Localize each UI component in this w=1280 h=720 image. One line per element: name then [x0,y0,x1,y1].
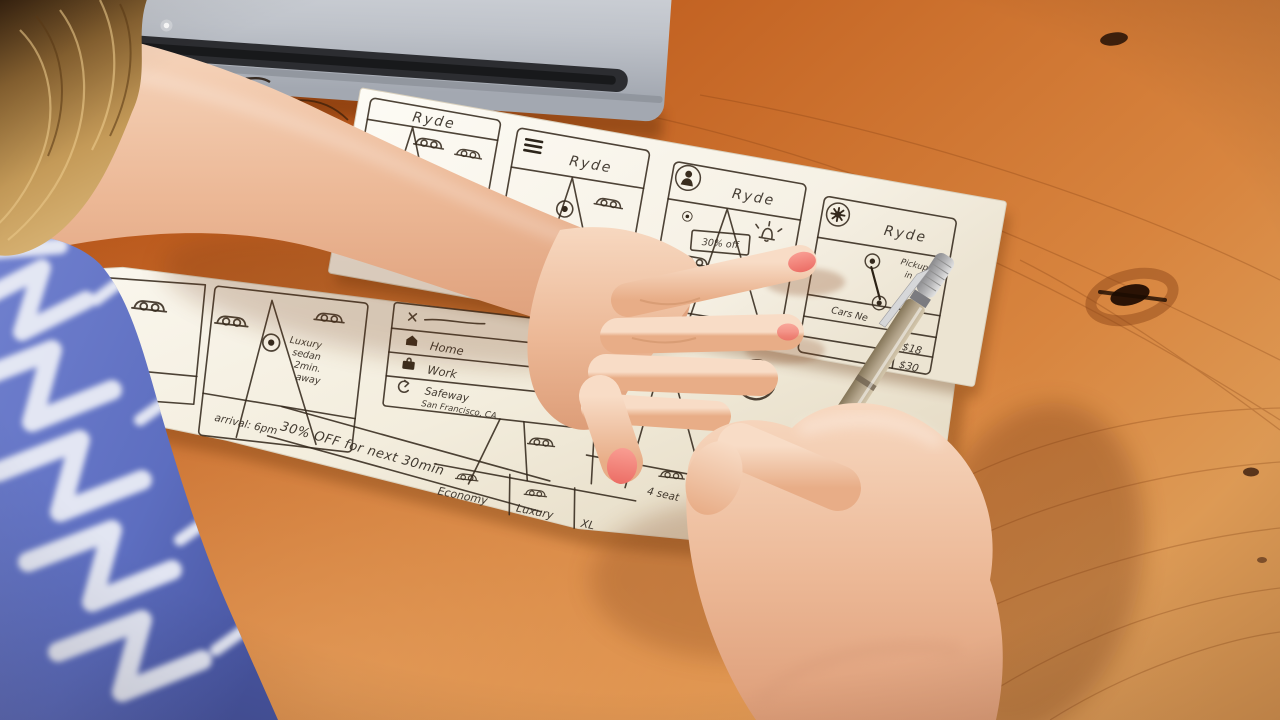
photo-scene: Luxury sedan 2min. away arrival: 6pm 30%… [0,0,1280,720]
vignette [0,0,1280,720]
scene-canvas: Luxury sedan 2min. away arrival: 6pm 30%… [0,0,1280,720]
